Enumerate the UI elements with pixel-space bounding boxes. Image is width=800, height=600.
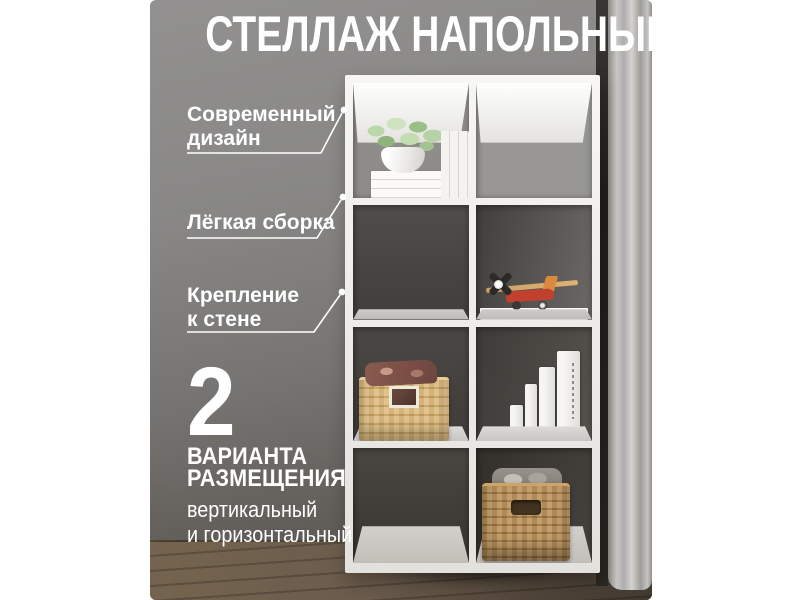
marketplace-product-image: СТЕЛЛАЖ НАПОЛЬНЫЙ Современный дизайн Лёг… — [0, 0, 800, 600]
basket-handle-hole — [511, 500, 541, 515]
flat-book — [480, 308, 588, 320]
toy-airplane-wheel — [512, 301, 521, 310]
book-stack — [371, 171, 449, 198]
book — [525, 384, 537, 441]
shelf-cell-3 — [353, 205, 469, 320]
callout-wall-mount: Крепление к стене — [187, 284, 299, 332]
callout-text-line: к стене — [187, 308, 261, 331]
toy-airplane — [484, 264, 580, 308]
curtain — [608, 0, 652, 590]
book — [510, 405, 523, 441]
callout-text-line: Крепление — [187, 284, 299, 307]
callout-text-line: Современный — [187, 103, 336, 126]
room-photo: СТЕЛЛАЖ НАПОЛЬНЫЙ Современный дизайн Лёг… — [150, 0, 652, 600]
product-title: СТЕЛЛАЖ НАПОЛЬНЫЙ — [205, 5, 597, 63]
wicker-basket — [359, 377, 449, 441]
shelf-cell-8 — [476, 448, 592, 563]
shelving-unit — [345, 75, 600, 573]
placement-options: 2 ВАРИАНТА РАЗМЕЩЕНИЯ вертикальный и гор… — [187, 358, 352, 547]
shelf-cell-2 — [476, 83, 592, 198]
folded-textile — [364, 359, 437, 387]
shelf-cell-5 — [353, 327, 469, 442]
placement-subtitle-line: вертикальный — [187, 497, 352, 522]
placement-subtitle-line: и горизонтальный — [187, 522, 352, 547]
shelf-cell-4 — [476, 205, 592, 320]
shelf-cell-1 — [353, 83, 469, 198]
callout-easy-assembly: Лёгкая сборка — [187, 211, 335, 235]
plant-pot — [381, 147, 425, 173]
shelf-cell-7 — [353, 448, 469, 563]
wicker-basket-dark — [482, 483, 570, 561]
callout-text-line: дизайн — [187, 127, 261, 150]
shelf-cell-6 — [476, 327, 592, 442]
book — [557, 351, 580, 441]
callout-modern-design: Современный дизайн — [187, 103, 336, 151]
toy-airplane-propeller-hub — [494, 280, 503, 289]
basket-label — [389, 386, 419, 408]
book — [539, 367, 555, 441]
toy-airplane-wheel — [538, 301, 547, 310]
placement-count: 2 — [187, 358, 352, 446]
callout-text-line: Лёгкая сборка — [187, 211, 335, 234]
standing-books — [441, 131, 469, 198]
placement-heading-line: РАЗМЕЩЕНИЯ — [187, 468, 352, 490]
